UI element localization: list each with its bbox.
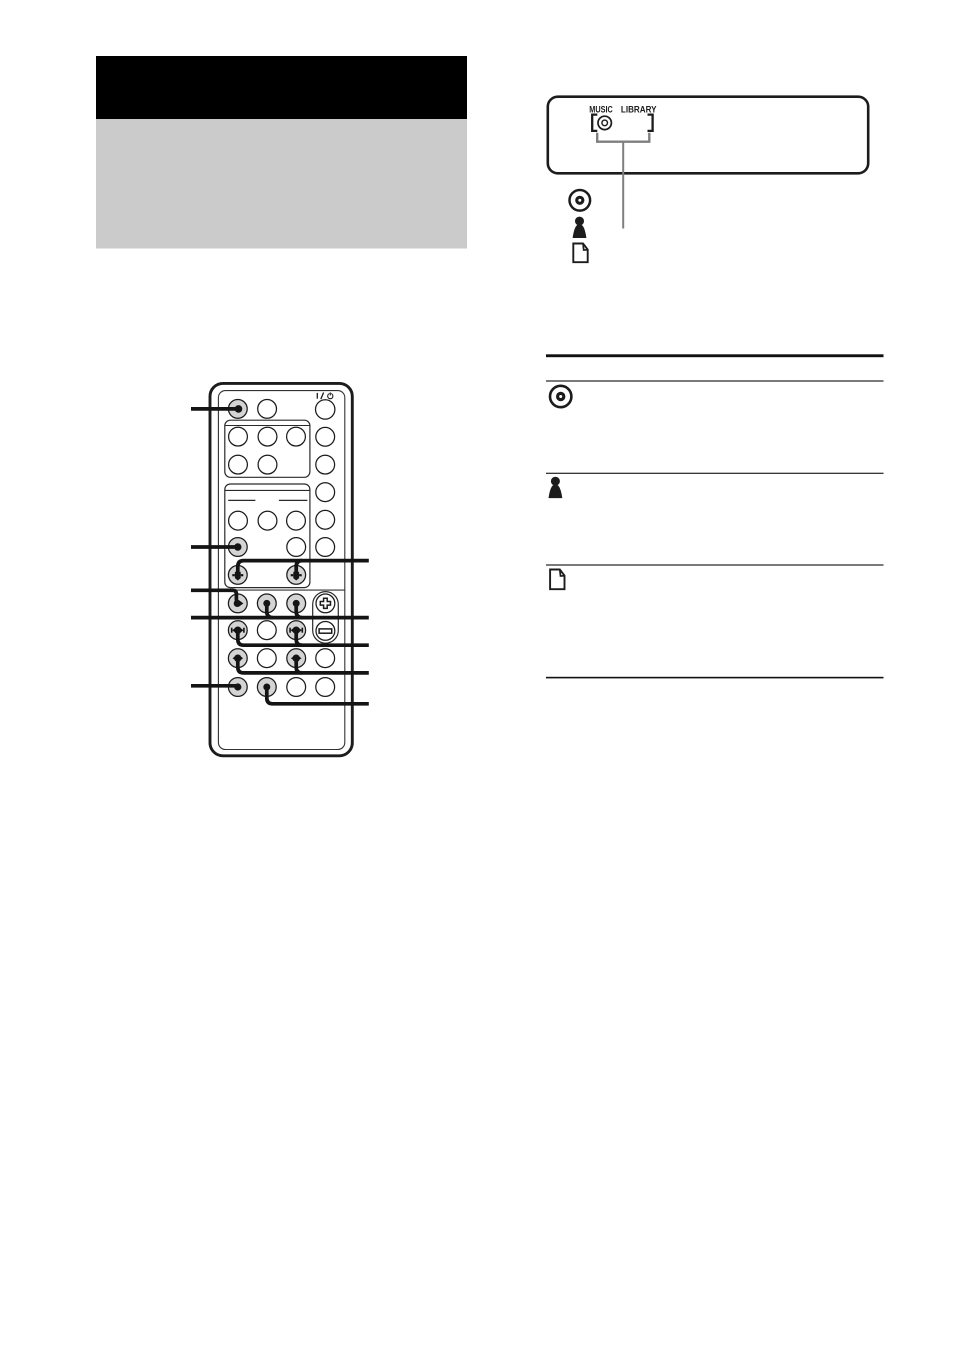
svg-text:MUSIC: MUSIC [589,104,613,114]
svg-text:LIBRARY: LIBRARY [621,104,657,114]
